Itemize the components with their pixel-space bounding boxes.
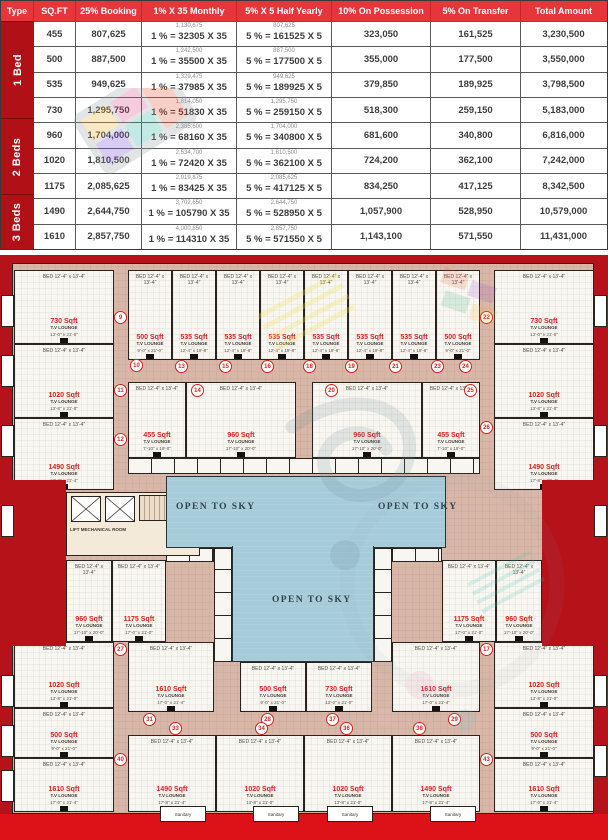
cell-possession: 681,600 <box>332 123 431 147</box>
unit-dimension-label: 17'-10" x 20'-0" <box>352 446 382 453</box>
cell-booking: 807,625 <box>76 22 142 46</box>
payment-table-body: 1 Bed 2 Beds 3 Beds 455 807,625 1,130,67… <box>1 21 607 249</box>
corridor-number-badge: 15 <box>219 360 232 373</box>
unit-lounge-label: T.V LOUNGE <box>136 341 163 348</box>
bed-room-label: BED 12'-4" x 13'-4" <box>350 274 390 286</box>
cell-monthly: 4,000,8501 % = 114310 X 35 <box>142 225 237 249</box>
corridor-number-badge: 29 <box>448 713 461 726</box>
unit-lounge-label: T.V LOUNGE <box>528 399 559 406</box>
unit-lounge-label: T.V LOUNGE <box>332 793 363 800</box>
balcony-strip <box>214 548 232 662</box>
unit-dimension-label: 12'-4" x 19'-8" <box>356 348 384 355</box>
payment-table-row: 455 807,625 1,130,6751 % = 32305 X 35 80… <box>34 21 607 46</box>
cell-halfyearly: 2,085,6255 % = 417125 X 5 <box>237 174 332 198</box>
floor-unit: BED 12'-4" x 13'-4"1610 SqftT.V LOUNGE17… <box>128 642 214 712</box>
floor-unit: BED 12'-4" x 13'-4"960 SqftT.V LOUNGE17'… <box>66 560 112 642</box>
unit-label-group: 500 SqftT.V LOUNGE9'-0" x 21'-0" <box>136 335 163 355</box>
bed-room-label: BED 12'-4" x 13'-4" <box>523 348 565 354</box>
bed-room-label: BED 12'-4" x 13'-4" <box>130 274 170 286</box>
unit-dimension-label: 13'-0" x 21'-0" <box>530 332 558 339</box>
unit-dimension-label: 12'-4" x 19'-8" <box>312 348 340 355</box>
cell-transfer: 362,100 <box>431 149 521 173</box>
unit-lounge-label: T.V LOUNGE <box>226 439 256 446</box>
cell-halfyearly: 949,6255 % = 189925 X 5 <box>237 73 332 97</box>
unit-label-group: 1610 SqftT.V LOUNGE17'-0" x 21'-4" <box>155 687 186 707</box>
cell-transfer: 340,800 <box>431 123 521 147</box>
floor-unit: BED 12'-4" x 13'-4"500 SqftT.V LOUNGE9'-… <box>14 708 114 758</box>
cell-monthly: 2,385,6001 % = 68160 X 35 <box>142 123 237 147</box>
payment-table-row: 1490 2,644,750 3,702,6501 % = 105790 X 3… <box>34 198 607 223</box>
corridor-number-badge: 24 <box>459 360 472 373</box>
corridor-number-badge: 12 <box>114 433 127 446</box>
corridor-number-badge: 40 <box>114 753 127 766</box>
cell-total: 3,550,000 <box>521 47 606 71</box>
floor-unit: BED 12'-4" x 13'-4"500 SqftT.V LOUNGE9'-… <box>240 662 306 712</box>
unit-lounge-label: T.V LOUNGE <box>268 341 296 348</box>
cell-sqft: 455 <box>34 22 76 46</box>
unit-lounge-label: T.V LOUNGE <box>156 793 187 800</box>
edge-tab <box>1 505 14 537</box>
unit-lounge-label: T.V LOUNGE <box>530 325 558 332</box>
unit-dimension-label: 9'-0" x 21'-0" <box>50 746 77 753</box>
cell-monthly: 1,130,6751 % = 32305 X 35 <box>142 22 237 46</box>
corridor-number-badge: 17 <box>480 643 493 656</box>
corridor-number-badge: 22 <box>480 311 493 324</box>
bed-type-group: 2 Beds <box>1 118 34 194</box>
payment-groups: 1 Bed 2 Beds 3 Beds <box>1 21 34 249</box>
floor-unit: BED 12'-4" x 13'-4"1490 SqftT.V LOUNGE17… <box>128 735 216 812</box>
unit-lounge-label: T.V LOUNGE <box>400 341 428 348</box>
bed-room-label: BED 12'-4" x 13'-4" <box>220 386 262 392</box>
bed-room-label: BED 12'-4" x 13'-4" <box>523 646 565 652</box>
cell-possession: 518,300 <box>332 98 431 122</box>
unit-lounge-label: T.V LOUNGE <box>50 325 78 332</box>
cell-monthly: 3,702,6501 % = 105790 X 35 <box>142 199 237 223</box>
col-header-sqft: SQ.FT <box>34 1 76 21</box>
cell-sqft: 1490 <box>34 199 76 223</box>
corridor-number-badge: 19 <box>345 360 358 373</box>
cell-booking: 2,857,750 <box>76 225 142 249</box>
bed-room-label: BED 12'-4" x 13'-4" <box>327 739 369 745</box>
cell-booking: 1,295,750 <box>76 98 142 122</box>
unit-lounge-label: T.V LOUNGE <box>352 439 382 446</box>
open-to-sky-label: OPEN TO SKY <box>378 502 457 512</box>
cell-transfer: 189,925 <box>431 73 521 97</box>
unit-label-group: 500 SqftT.V LOUNGE9'-0" x 21'-0" <box>444 335 471 355</box>
bed-room-label: BED 12'-4" x 13'-4" <box>318 666 360 672</box>
floor-unit: BED 12'-4" x 13'-4"1020 SqftT.V LOUNGE13… <box>14 642 114 708</box>
unit-lounge-label: T.V LOUNGE <box>528 471 559 478</box>
bed-room-label: BED 12'-4" x 13'-4" <box>174 274 214 286</box>
unit-dimension-label: 17'-10" x 20'-0" <box>226 446 256 453</box>
floor-unit: BED 12'-4" x 13'-4"730 SqftT.V LOUNGE13'… <box>494 270 594 344</box>
unit-lounge-label: T.V LOUNGE <box>74 623 104 630</box>
unit-dimension-label: 17'-0" x 21'-4" <box>155 700 186 707</box>
sanitary-tab: Sanitary <box>253 806 299 822</box>
unit-lounge-label: T.V LOUNGE <box>143 439 171 446</box>
unit-dimension-label: 13'-0" x 21'-0" <box>50 332 78 339</box>
unit-dimension-label: 12'-4" x 19'-8" <box>224 348 252 355</box>
unit-label-group: 1175 SqftT.V LOUNGE17'-0" x 21'-0" <box>124 617 155 637</box>
bed-type-group: 3 Beds <box>1 194 34 249</box>
cell-halfyearly: 2,644,7505 % = 528950 X 5 <box>237 199 332 223</box>
bed-room-label: BED 12'-4" x 13'-4" <box>523 712 565 718</box>
payment-table-row: 1020 1,810,500 2,534,7001 % = 72420 X 35… <box>34 148 607 173</box>
cell-booking: 1,704,000 <box>76 123 142 147</box>
corridor-number-badge: 37 <box>326 713 339 726</box>
unit-label-group: 1020 SqftT.V LOUNGE13'-8" x 21'-0" <box>332 787 363 807</box>
corridor-number-badge: 27 <box>114 643 127 656</box>
floor-unit: BED 12'-4" x 13'-4"535 SqftT.V LOUNGE12'… <box>304 270 348 360</box>
unit-dimension-label: 9'-0" x 21'-0" <box>136 348 163 355</box>
payment-plan-table: Type SQ.FT 25% Booking 1% X 35 Monthly 5… <box>0 0 608 250</box>
unit-lounge-label: T.V LOUNGE <box>437 439 465 446</box>
unit-lounge-label: T.V LOUNGE <box>530 739 557 746</box>
unit-label-group: 535 SqftT.V LOUNGE12'-4" x 19'-8" <box>356 335 384 355</box>
unit-label-group: 535 SqftT.V LOUNGE12'-4" x 19'-8" <box>224 335 252 355</box>
floor-unit: BED 12'-4" x 13'-4"1175 SqftT.V LOUNGE17… <box>112 560 166 642</box>
corridor-number-badge: 10 <box>130 359 143 372</box>
edge-tab <box>594 425 607 457</box>
corridor-number-badge: 34 <box>255 722 268 735</box>
bed-room-label: BED 12'-4" x 13'-4" <box>438 274 478 286</box>
edge-tab <box>594 745 607 777</box>
edge-tab <box>1 295 14 327</box>
edge-tab <box>1 770 14 802</box>
cell-possession: 355,000 <box>332 47 431 71</box>
payment-table-row: 535 949,625 1,329,4751 % = 37985 X 35 94… <box>34 72 607 97</box>
corridor-number-badge: 11 <box>114 384 127 397</box>
payment-table-row: 1175 2,085,625 2,919,8751 % = 83425 X 35… <box>34 173 607 198</box>
unit-label-group: 960 SqftT.V LOUNGE17'-10" x 20'-0" <box>226 433 256 453</box>
bed-type-group: 1 Bed <box>1 21 34 118</box>
lift-shaft <box>105 496 135 522</box>
floor-unit: BED 12'-4" x 13'-4"1020 SqftT.V LOUNGE13… <box>494 344 594 418</box>
floor-unit: BED 12'-4" x 13'-4"960 SqftT.V LOUNGE17'… <box>496 560 542 642</box>
floor-unit: BED 12'-4" x 13'-4"535 SqftT.V LOUNGE12'… <box>392 270 436 360</box>
corridor-number-badge: 9 <box>114 311 127 324</box>
cell-sqft: 1020 <box>34 149 76 173</box>
corridor-number-badge: 18 <box>303 360 316 373</box>
col-header-possession: 10% On Possession <box>332 1 431 21</box>
cell-total: 7,242,000 <box>521 149 606 173</box>
col-header-halfyearly: 5% X 5 Half Yearly <box>237 1 332 21</box>
unit-label-group: 1020 SqftT.V LOUNGE13'-8" x 21'-0" <box>48 393 79 413</box>
bed-room-label: BED 12'-4" x 13'-4" <box>118 564 160 570</box>
unit-lounge-label: T.V LOUNGE <box>528 689 559 696</box>
lift-shaft <box>71 496 101 522</box>
unit-dimension-label: 7'-10" x 19'-0" <box>437 446 465 453</box>
unit-label-group: 500 SqftT.V LOUNGE9'-0" x 21'-0" <box>530 733 557 753</box>
floor-unit: BED 12'-4" x 13'-4"1020 SqftT.V LOUNGE13… <box>14 344 114 418</box>
bed-room-label: BED 12'-4" x 13'-4" <box>523 422 565 428</box>
bed-room-label: BED 12'-4" x 13'-4" <box>415 646 457 652</box>
cell-booking: 2,085,625 <box>76 174 142 198</box>
bed-room-label: BED 12'-4" x 13'-4" <box>415 739 457 745</box>
floor-unit: BED 12'-4" x 13'-4"1020 SqftT.V LOUNGE13… <box>216 735 304 812</box>
unit-dimension-label: 17'-0" x 21'-0" <box>454 630 485 637</box>
corridor-number-badge: 33 <box>169 722 182 735</box>
unit-dimension-label: 13'-8" x 21'-0" <box>48 406 79 413</box>
floor-unit: BED 12'-4" x 13'-4"535 SqftT.V LOUNGE12'… <box>216 270 260 360</box>
balcony-strip <box>128 458 480 474</box>
unit-lounge-label: T.V LOUNGE <box>50 739 77 746</box>
col-header-total: Total Amount <box>521 1 606 21</box>
floor-unit: BED 12'-4" x 13'-4"500 SqftT.V LOUNGE9'-… <box>128 270 172 360</box>
bed-room-label: BED 12'-4" x 13'-4" <box>346 386 388 392</box>
unit-lounge-label: T.V LOUNGE <box>48 471 79 478</box>
floor-unit: BED 12'-4" x 13'-4"535 SqftT.V LOUNGE12'… <box>348 270 392 360</box>
cell-monthly: 1,814,0501 % = 51830 X 35 <box>142 98 237 122</box>
unit-dimension-label: 12'-4" x 19'-8" <box>180 348 208 355</box>
bed-room-label: BED 12'-4" x 13'-4" <box>262 274 302 286</box>
edge-tab <box>594 295 607 327</box>
unit-label-group: 730 SqftT.V LOUNGE13'-0" x 21'-0" <box>325 687 353 707</box>
unit-label-group: 730 SqftT.V LOUNGE13'-0" x 21'-0" <box>530 319 558 339</box>
bed-room-label: BED 12'-4" x 13'-4" <box>218 274 258 286</box>
unit-label-group: 1020 SqftT.V LOUNGE13'-8" x 21'-0" <box>48 683 79 703</box>
corridor-number-badge: 25 <box>464 384 477 397</box>
unit-label-group: 960 SqftT.V LOUNGE17'-10" x 20'-0" <box>352 433 382 453</box>
floor-plan-bottom-band <box>0 814 608 840</box>
payment-table-row: 960 1,704,000 2,385,6001 % = 68160 X 35 … <box>34 122 607 147</box>
col-header-transfer: 5% On Transfer <box>431 1 521 21</box>
edge-tab <box>1 725 14 757</box>
payment-table-row: 500 887,500 1,242,5001 % = 35500 X 35 88… <box>34 46 607 71</box>
unit-dimension-label: 13'-8" x 21'-0" <box>528 406 559 413</box>
unit-label-group: 500 SqftT.V LOUNGE9'-0" x 21'-0" <box>259 687 286 707</box>
corridor-number-badge: 38 <box>413 722 426 735</box>
corridor-number-badge: 16 <box>261 360 274 373</box>
unit-lounge-label: T.V LOUNGE <box>124 623 155 630</box>
unit-lounge-label: T.V LOUNGE <box>444 341 471 348</box>
corridor-number-badge: 20 <box>325 384 338 397</box>
unit-label-group: 1490 SqftT.V LOUNGE17'-8" x 21'-4" <box>420 787 451 807</box>
cell-halfyearly: 1,810,5005 % = 362100 X 5 <box>237 149 332 173</box>
cell-booking: 1,810,500 <box>76 149 142 173</box>
corridor-number-badge: 21 <box>389 360 402 373</box>
floor-unit: BED 12'-4" x 13'-4"1490 SqftT.V LOUNGE17… <box>392 735 480 812</box>
cell-monthly: 2,534,7001 % = 72420 X 35 <box>142 149 237 173</box>
unit-dimension-label: 12'-4" x 19'-8" <box>268 348 296 355</box>
sanitary-tab: Sanitary <box>160 806 206 822</box>
unit-lounge-label: T.V LOUNGE <box>48 399 79 406</box>
cell-halfyearly: 1,295,7505 % = 259150 X 5 <box>237 98 332 122</box>
bed-room-label: BED 12'-4" x 13'-4" <box>523 274 565 280</box>
balcony-strip <box>392 548 442 562</box>
unit-lounge-label: T.V LOUNGE <box>325 693 353 700</box>
cell-halfyearly: 1,704,0005 % = 340800 X 5 <box>237 123 332 147</box>
cell-total: 3,230,500 <box>521 22 606 46</box>
col-header-monthly: 1% X 35 Monthly <box>142 1 237 21</box>
floor-unit: BED 12'-4" x 13'-4"1610 SqftT.V LOUNGE17… <box>494 758 594 812</box>
bed-room-label: BED 12'-4" x 13'-4" <box>68 564 110 576</box>
open-to-sky-label: OPEN TO SKY <box>272 595 351 605</box>
unit-dimension-label: 9'-0" x 21'-0" <box>444 348 471 355</box>
corridor-number-badge: 14 <box>191 384 204 397</box>
floor-unit: BED 12'-4" x 13'-4"730 SqftT.V LOUNGE13'… <box>14 270 114 344</box>
bed-room-label: BED 12'-4" x 13'-4" <box>498 564 540 576</box>
unit-label-group: 535 SqftT.V LOUNGE12'-4" x 19'-8" <box>268 335 296 355</box>
cell-possession: 323,050 <box>332 22 431 46</box>
unit-label-group: 455 SqftT.V LOUNGE7'-10" x 19'-0" <box>437 433 465 453</box>
unit-label-group: 1610 SqftT.V LOUNGE17'-0" x 21'-4" <box>528 787 559 807</box>
floor-unit: BED 12'-4" x 13'-4"1020 SqftT.V LOUNGE13… <box>494 642 594 708</box>
unit-dimension-label: 9'-0" x 21'-0" <box>259 700 286 707</box>
brochure-page: Type SQ.FT 25% Booking 1% X 35 Monthly 5… <box>0 0 608 840</box>
sanitary-tab: Sanitary <box>430 806 476 822</box>
unit-lounge-label: T.V LOUNGE <box>420 693 451 700</box>
floor-unit: BED 12'-4" x 13'-4"535 SqftT.V LOUNGE12'… <box>172 270 216 360</box>
unit-dimension-label: 17'-10" x 20'-0" <box>504 630 534 637</box>
cell-booking: 887,500 <box>76 47 142 71</box>
floor-unit: BED 12'-4" x 13'-4"730 SqftT.V LOUNGE13'… <box>306 662 372 712</box>
cell-monthly: 2,919,8751 % = 83425 X 35 <box>142 174 237 198</box>
cell-sqft: 1175 <box>34 174 76 198</box>
unit-lounge-label: T.V LOUNGE <box>48 689 79 696</box>
corridor-number-badge: 23 <box>431 360 444 373</box>
courtyard-upper <box>166 476 446 548</box>
unit-lounge-label: T.V LOUNGE <box>155 693 186 700</box>
cell-sqft: 960 <box>34 123 76 147</box>
unit-lounge-label: T.V LOUNGE <box>528 793 559 800</box>
edge-tab <box>1 425 14 457</box>
bed-room-label: BED 12'-4" x 13'-4" <box>43 646 85 652</box>
unit-label-group: 535 SqftT.V LOUNGE12'-4" x 19'-8" <box>400 335 428 355</box>
unit-label-group: 1610 SqftT.V LOUNGE17'-0" x 21'-4" <box>48 787 79 807</box>
cell-possession: 379,850 <box>332 73 431 97</box>
cell-transfer: 259,150 <box>431 98 521 122</box>
cell-transfer: 417,125 <box>431 174 521 198</box>
unit-label-group: 1020 SqftT.V LOUNGE13'-8" x 21'-0" <box>244 787 275 807</box>
unit-dimension-label: 17'-0" x 21'-0" <box>124 630 155 637</box>
unit-lounge-label: T.V LOUNGE <box>48 793 79 800</box>
unit-dimension-label: 12'-4" x 19'-8" <box>400 348 428 355</box>
unit-lounge-label: T.V LOUNGE <box>504 623 534 630</box>
cell-total: 3,798,500 <box>521 73 606 97</box>
cell-sqft: 535 <box>34 73 76 97</box>
cell-transfer: 161,525 <box>431 22 521 46</box>
corridor-number-badge: 31 <box>143 713 156 726</box>
bed-room-label: BED 12'-4" x 13'-4" <box>43 762 85 768</box>
unit-dimension-label: 13'-8" x 21'-0" <box>528 696 559 703</box>
floor-unit: BED 12'-4" x 13'-4"500 SqftT.V LOUNGE9'-… <box>494 708 594 758</box>
unit-dimension-label: 13'-0" x 21'-0" <box>325 700 353 707</box>
cell-transfer: 571,550 <box>431 225 521 249</box>
cell-total: 5,183,000 <box>521 98 606 122</box>
unit-label-group: 1020 SqftT.V LOUNGE13'-8" x 21'-0" <box>528 683 559 703</box>
unit-label-group: 730 SqftT.V LOUNGE13'-0" x 21'-0" <box>50 319 78 339</box>
floor-unit: BED 12'-4" x 13'-4"535 SqftT.V LOUNGE12'… <box>260 270 304 360</box>
unit-dimension-label: 17'-0" x 21'-4" <box>48 800 79 807</box>
unit-dimension-label: 9'-0" x 21'-0" <box>530 746 557 753</box>
unit-label-group: 535 SqftT.V LOUNGE12'-4" x 19'-8" <box>180 335 208 355</box>
cell-sqft: 1610 <box>34 225 76 249</box>
sanitary-tab: Sanitary <box>327 806 373 822</box>
bed-room-label: BED 12'-4" x 13'-4" <box>43 712 85 718</box>
cell-possession: 724,200 <box>332 149 431 173</box>
unit-dimension-label: 17'-0" x 21'-4" <box>528 800 559 807</box>
bed-room-label: BED 12'-4" x 13'-4" <box>43 422 85 428</box>
balcony-strip <box>374 548 392 662</box>
floor-unit: BED 12'-4" x 13'-4"500 SqftT.V LOUNGE9'-… <box>436 270 480 360</box>
cell-sqft: 730 <box>34 98 76 122</box>
payment-table-row: 1610 2,857,750 4,000,8501 % = 114310 X 3… <box>34 224 607 249</box>
payment-rows: 455 807,625 1,130,6751 % = 32305 X 35 80… <box>34 21 607 249</box>
cell-total: 8,342,500 <box>521 174 606 198</box>
unit-label-group: 1175 SqftT.V LOUNGE17'-0" x 21'-0" <box>454 617 485 637</box>
bed-room-label: BED 12'-4" x 13'-4" <box>394 274 434 286</box>
unit-lounge-label: T.V LOUNGE <box>244 793 275 800</box>
bed-room-label: BED 12'-4" x 13'-4" <box>239 739 281 745</box>
unit-dimension-label: 7'-10" x 19'-0" <box>143 446 171 453</box>
cell-sqft: 500 <box>34 47 76 71</box>
unit-lounge-label: T.V LOUNGE <box>454 623 485 630</box>
edge-tab <box>1 355 14 387</box>
unit-lounge-label: T.V LOUNGE <box>420 793 451 800</box>
unit-lounge-label: T.V LOUNGE <box>312 341 340 348</box>
unit-label-group: 535 SqftT.V LOUNGE12'-4" x 19'-8" <box>312 335 340 355</box>
col-header-type: Type <box>1 1 34 21</box>
payment-table-row: 730 1,295,750 1,814,0501 % = 51830 X 35 … <box>34 97 607 122</box>
unit-dimension-label: 17'-0" x 21'-4" <box>420 700 451 707</box>
unit-label-group: 1020 SqftT.V LOUNGE13'-8" x 21'-0" <box>528 393 559 413</box>
edge-tab <box>594 675 607 707</box>
cell-booking: 2,644,750 <box>76 199 142 223</box>
cell-possession: 834,250 <box>332 174 431 198</box>
floor-unit: BED 12'-4" x 13'-4"455 SqftT.V LOUNGE7'-… <box>128 382 186 458</box>
bed-room-label: BED 12'-4" x 13'-4" <box>151 739 193 745</box>
unit-label-group: 455 SqftT.V LOUNGE7'-10" x 19'-0" <box>143 433 171 453</box>
cell-total: 6,816,000 <box>521 123 606 147</box>
floor-unit: BED 12'-4" x 13'-4"1020 SqftT.V LOUNGE13… <box>304 735 392 812</box>
cell-halfyearly: 2,857,7505 % = 571550 X 5 <box>237 225 332 249</box>
cell-halfyearly: 887,5005 % = 177500 X 5 <box>237 47 332 71</box>
unit-label-group: 1490 SqftT.V LOUNGE17'-8" x 21'-4" <box>156 787 187 807</box>
unit-dimension-label: 13'-8" x 21'-0" <box>48 696 79 703</box>
corridor-number-badge: 26 <box>480 421 493 434</box>
cell-possession: 1,057,900 <box>332 199 431 223</box>
bed-room-label: BED 12'-4" x 13'-4" <box>448 564 490 570</box>
floor-unit: BED 12'-4" x 13'-4"1610 SqftT.V LOUNGE17… <box>392 642 480 712</box>
corridor-number-badge: 43 <box>480 753 493 766</box>
unit-lounge-label: T.V LOUNGE <box>224 341 252 348</box>
unit-dimension-label: 17'-10" x 20'-0" <box>74 630 104 637</box>
bed-room-label: BED 12'-4" x 13'-4" <box>306 274 346 286</box>
bed-room-label: BED 12'-4" x 13'-4" <box>252 666 294 672</box>
cell-booking: 949,625 <box>76 73 142 97</box>
unit-lounge-label: T.V LOUNGE <box>180 341 208 348</box>
unit-lounge-label: T.V LOUNGE <box>356 341 384 348</box>
bed-room-label: BED 12'-4" x 13'-4" <box>136 386 178 392</box>
floor-unit: BED 12'-4" x 13'-4"1175 SqftT.V LOUNGE17… <box>442 560 496 642</box>
unit-lounge-label: T.V LOUNGE <box>259 693 286 700</box>
open-to-sky-label: OPEN TO SKY <box>176 502 255 512</box>
bed-room-label: BED 12'-4" x 13'-4" <box>43 274 85 280</box>
unit-label-group: 960 SqftT.V LOUNGE17'-10" x 20'-0" <box>74 617 104 637</box>
edge-tab <box>594 505 607 537</box>
bed-room-label: BED 12'-4" x 13'-4" <box>43 348 85 354</box>
cell-halfyearly: 807,6255 % = 161525 X 5 <box>237 22 332 46</box>
cell-total: 10,579,000 <box>521 199 606 223</box>
unit-label-group: 960 SqftT.V LOUNGE17'-10" x 20'-0" <box>504 617 534 637</box>
unit-label-group: 500 SqftT.V LOUNGE9'-0" x 21'-0" <box>50 733 77 753</box>
cell-transfer: 528,950 <box>431 199 521 223</box>
unit-label-group: 1610 SqftT.V LOUNGE17'-0" x 21'-4" <box>420 687 451 707</box>
payment-table-header: Type SQ.FT 25% Booking 1% X 35 Monthly 5… <box>1 1 607 21</box>
floor-unit: BED 12'-4" x 13'-4"1610 SqftT.V LOUNGE17… <box>14 758 114 812</box>
bed-room-label: BED 12'-4" x 13'-4" <box>523 762 565 768</box>
